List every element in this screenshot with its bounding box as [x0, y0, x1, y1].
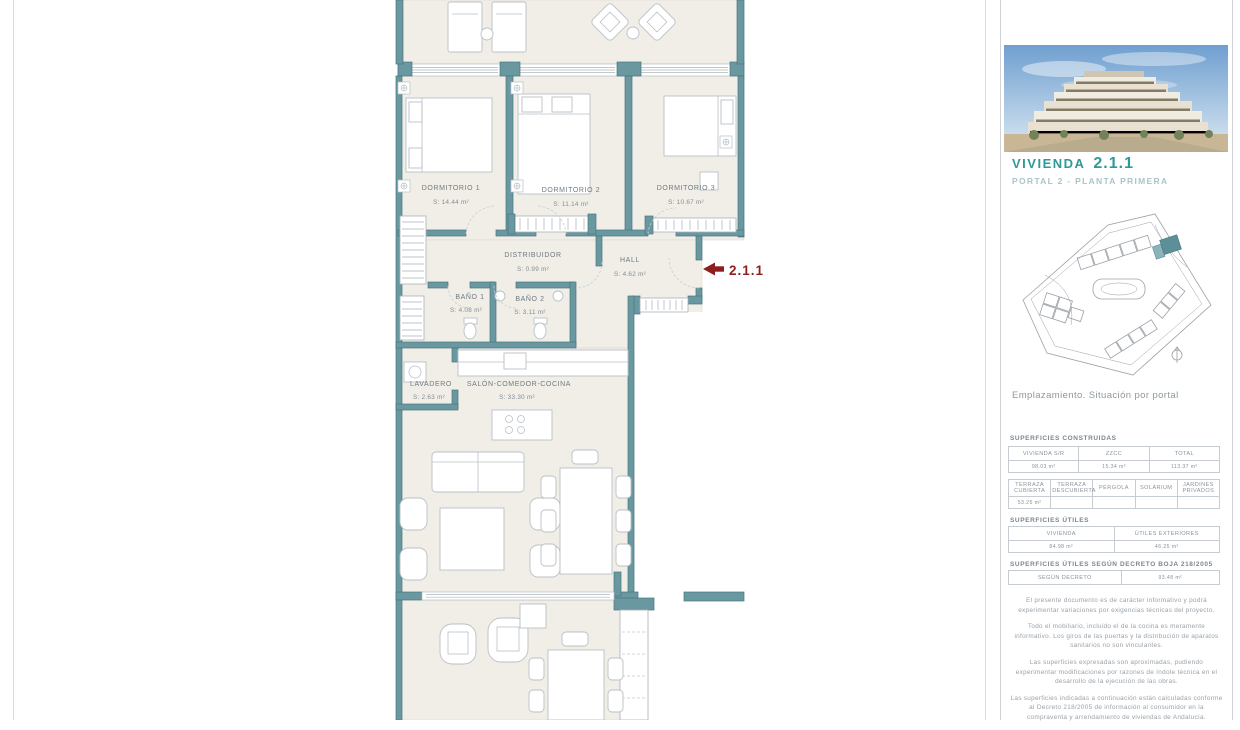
- plan-sheet: DORMITORIO 1 S: 14.44 m² DORMITORIO 2 S:…: [0, 0, 1240, 720]
- site-plan: [1015, 205, 1217, 383]
- disclaimer-paragraph: Las superficies indicadas a continuación…: [1010, 694, 1223, 723]
- unit-number: 2.1.1: [1093, 155, 1134, 172]
- floor-plan: DORMITORIO 1 S: 14.44 m² DORMITORIO 2 S:…: [0, 0, 1000, 720]
- section-heading-utiles: SUPERFICIES ÚTILES: [1010, 517, 1089, 524]
- stairs-hatch: [400, 216, 426, 284]
- table-header-cell: SOLÁRIUM: [1135, 480, 1177, 497]
- room-label: DORMITORIO 3: [657, 185, 715, 192]
- disclaimer-paragraph: Todo el mobiliario, incluido el de la co…: [1010, 622, 1223, 651]
- bed-dormitorio-1: [406, 98, 492, 172]
- surface-table-utiles: VIVIENDA ÚTILES EXTERIORES 84.98 m² 46.2…: [1008, 526, 1220, 553]
- room-label: DORMITORIO 2: [542, 187, 600, 194]
- section-heading-construidas: SUPERFICIES CONSTRUIDAS: [1010, 435, 1117, 442]
- table-value-cell: [1051, 497, 1093, 509]
- room-label: BAÑO 1: [455, 292, 484, 301]
- room-label: DISTRIBUIDOR: [504, 252, 561, 259]
- surface-table-exteriores: TERRAZA CUBIERTA TERRAZA DESCUBIERTA PÉR…: [1008, 479, 1220, 509]
- table-header-cell: VIVIENDA S/R: [1009, 447, 1079, 461]
- table-value-cell: 53.25 m²: [1009, 497, 1051, 509]
- room-area: S: 2.63 m²: [413, 394, 445, 401]
- facade-window-band: [398, 62, 744, 76]
- building-photo: [1004, 45, 1228, 152]
- unit-title-block: VIVIENDA2.1.1 PORTAL 2 - PLANTA PRIMERA: [1012, 155, 1224, 186]
- unit-subtitle: PORTAL 2 - PLANTA PRIMERA: [1012, 176, 1224, 186]
- room-label: SALÓN-COMEDOR-COCINA: [467, 379, 571, 388]
- table-header-cell: SEGÚN DECRETO: [1009, 571, 1122, 585]
- room-area: S: 3.11 m²: [514, 309, 546, 316]
- table-value-cell: [1177, 497, 1219, 509]
- unit-pointer-label: 2.1.1: [729, 263, 764, 278]
- disclaimer-paragraph: Las superficies expresadas son aproximad…: [1010, 658, 1223, 687]
- legal-disclaimers: El presente documento es de carácter inf…: [1010, 596, 1223, 730]
- table-value-cell: 15.34 m²: [1079, 461, 1149, 473]
- unit-pointer-arrow-icon: [703, 263, 715, 276]
- site-plan-highlighted-unit: [1151, 235, 1182, 260]
- table-value-cell: [1135, 497, 1177, 509]
- closet-dormitorio-3: [645, 216, 736, 234]
- surface-table-construidas: VIVIENDA S/R ZZCC TOTAL 98.03 m² 15.34 m…: [1008, 446, 1220, 473]
- room-area: S: 14.44 m²: [433, 199, 469, 206]
- table-header-cell: ZZCC: [1079, 447, 1149, 461]
- siteplan-caption: Emplazamiento. Situación por portal: [1012, 390, 1179, 401]
- room-area: S: 10.67 m²: [668, 199, 704, 206]
- room-label: BAÑO 2: [515, 294, 544, 303]
- page-title: VIVIENDA: [1012, 156, 1085, 171]
- disclaimer-paragraph: El presente documento es de carácter inf…: [1010, 596, 1223, 615]
- bed-dormitorio-2: [518, 94, 590, 194]
- shower-hatch: [400, 296, 424, 340]
- room-area: S: 11.14 m²: [553, 201, 588, 208]
- room-label: HALL: [620, 257, 640, 264]
- salon-window: [422, 592, 614, 600]
- unit-pointer: 2.1.1: [703, 263, 764, 279]
- table-header-cell: JARDINES PRIVADOS: [1177, 480, 1219, 497]
- table-header-cell: TERRAZA DESCUBIERTA: [1051, 480, 1093, 497]
- info-panel: VIVIENDA2.1.1 PORTAL 2 - PLANTA PRIMERA: [1000, 0, 1233, 720]
- table-value-cell: 93.48 m²: [1121, 571, 1219, 585]
- table-header-cell: TOTAL: [1149, 447, 1219, 461]
- table-header-cell: ÚTILES EXTERIORES: [1114, 527, 1220, 541]
- table-value-cell: 98.03 m²: [1009, 461, 1079, 473]
- table-header-cell: PÉRGOLA: [1093, 480, 1135, 497]
- table-value-cell: 113.37 m²: [1149, 461, 1219, 473]
- table-value-cell: 84.98 m²: [1009, 541, 1115, 553]
- table-value-cell: [1093, 497, 1135, 509]
- room-area: S: 4.62 m²: [614, 271, 646, 278]
- room-label: DORMITORIO 1: [422, 185, 480, 192]
- closet-dormitorio-2: [508, 214, 596, 234]
- table-header-cell: VIVIENDA: [1009, 527, 1115, 541]
- surface-table-decreto: SEGÚN DECRETO 93.48 m²: [1008, 570, 1220, 585]
- terrace-planter: [620, 610, 648, 720]
- hall-window-hatch: [640, 298, 688, 312]
- table-header-cell: TERRAZA CUBIERTA: [1009, 480, 1051, 497]
- room-area: S: 33.30 m²: [499, 394, 535, 401]
- room-label: LAVADERO: [410, 381, 452, 388]
- room-area: S: 4.08 m²: [450, 307, 482, 314]
- section-heading-decreto: SUPERFICIES ÚTILES SEGÚN DECRETO BOJA 21…: [1010, 561, 1213, 568]
- compass-icon: [1172, 347, 1182, 363]
- table-value-cell: 46.25 m²: [1114, 541, 1220, 553]
- room-area: S: 0.99 m²: [517, 266, 549, 273]
